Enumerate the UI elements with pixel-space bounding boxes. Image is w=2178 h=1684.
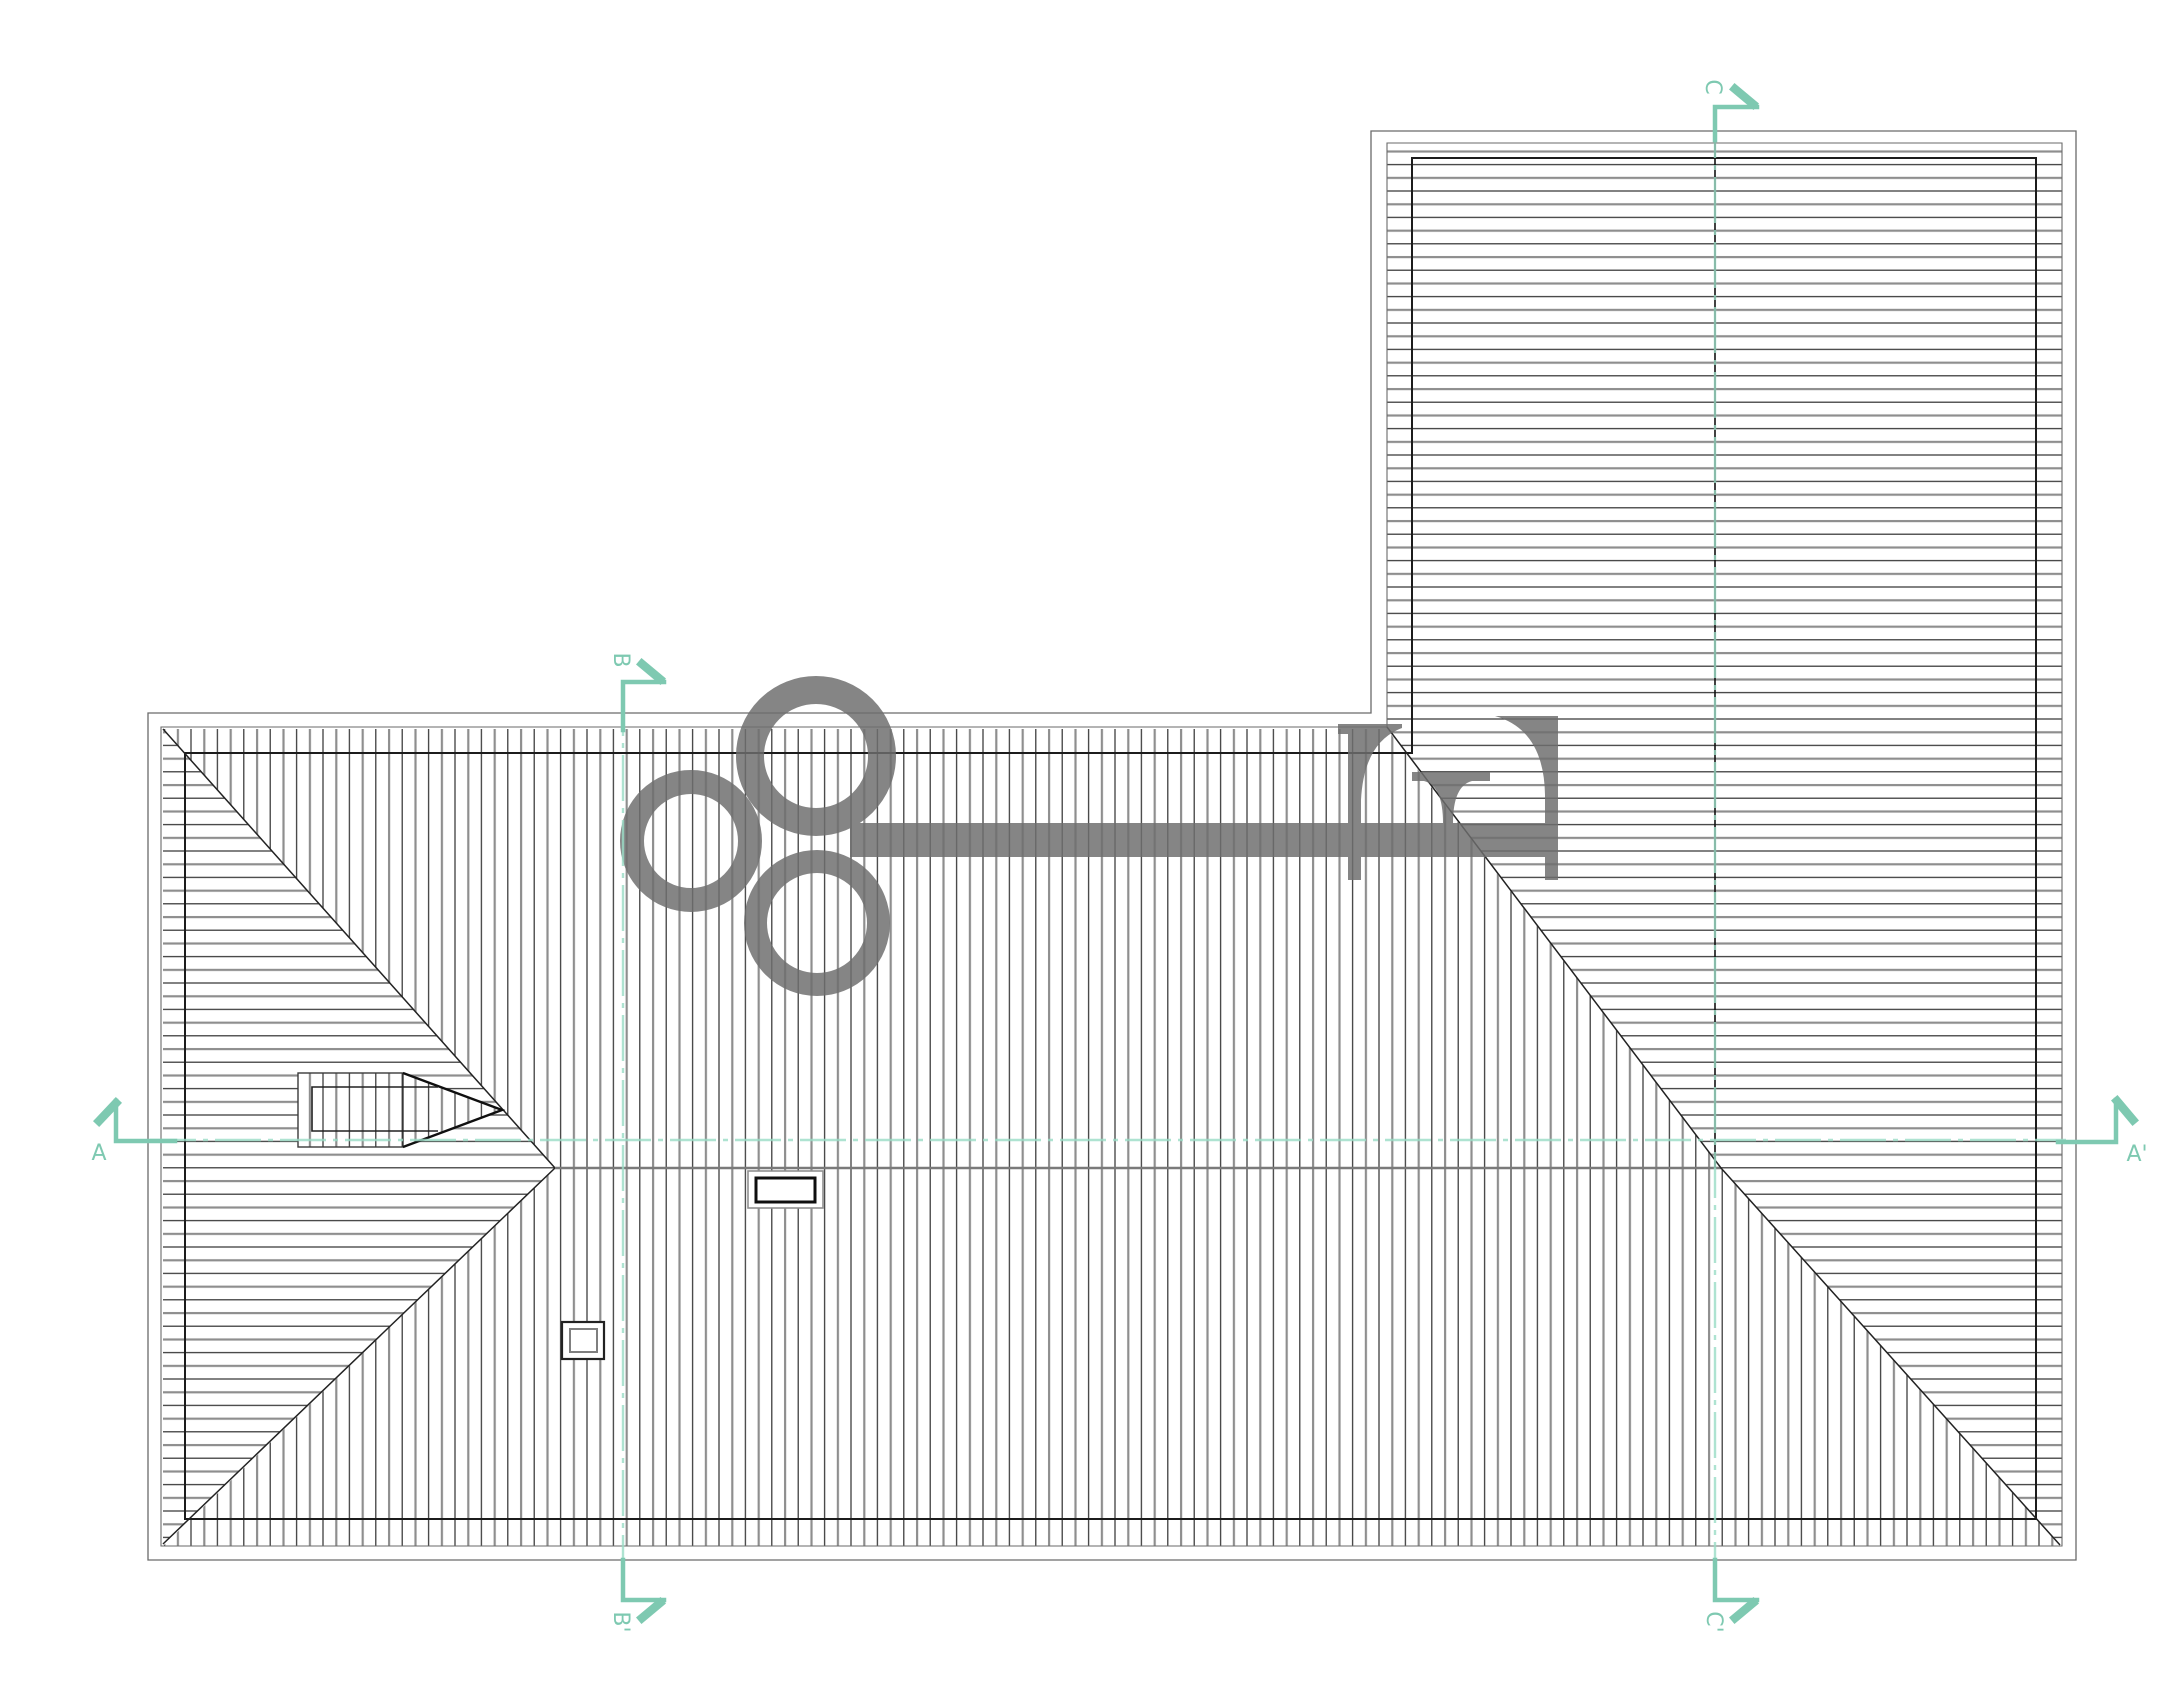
section-marker-b: B <box>608 652 664 730</box>
marker-c-arrow <box>1735 89 1753 104</box>
section-marker-b-prime: B' <box>608 1560 664 1633</box>
chimney-inner <box>756 1178 815 1202</box>
drawing-sheet: A A' B B' C C' <box>0 0 2178 1684</box>
marker-b-prime-arrow <box>642 1603 660 1618</box>
marker-b-arrow <box>642 664 660 679</box>
marker-c-flag <box>1715 107 1757 140</box>
marker-a-prime-label: A' <box>2126 1142 2147 1167</box>
marker-c-prime-label: C' <box>1701 1611 1726 1632</box>
marker-b-flag <box>623 682 664 730</box>
marker-a-prime-flag <box>2058 1100 2116 1142</box>
marker-c-prime-flag <box>1715 1560 1757 1600</box>
chimney <box>748 1171 823 1208</box>
marker-c-prime-arrow <box>1735 1603 1753 1618</box>
key-shaft <box>850 823 1558 857</box>
marker-b-prime-label: B' <box>608 1611 633 1632</box>
roof-plan-drawing: A A' B B' C C' <box>0 0 2178 1684</box>
marker-c-label: C <box>1700 79 1725 94</box>
marker-a-prime-arrow <box>2117 1101 2133 1120</box>
marker-a-arrow <box>99 1103 116 1121</box>
section-marker-c-prime: C' <box>1701 1560 1757 1633</box>
marker-b-label: B <box>608 652 633 667</box>
roof-vent <box>562 1322 604 1359</box>
marker-a-label: A <box>91 1141 106 1166</box>
vent-inner <box>570 1329 597 1352</box>
section-marker-a: A <box>91 1101 175 1166</box>
section-marker-a-prime: A' <box>2058 1100 2148 1167</box>
marker-b-prime-flag <box>623 1560 664 1600</box>
